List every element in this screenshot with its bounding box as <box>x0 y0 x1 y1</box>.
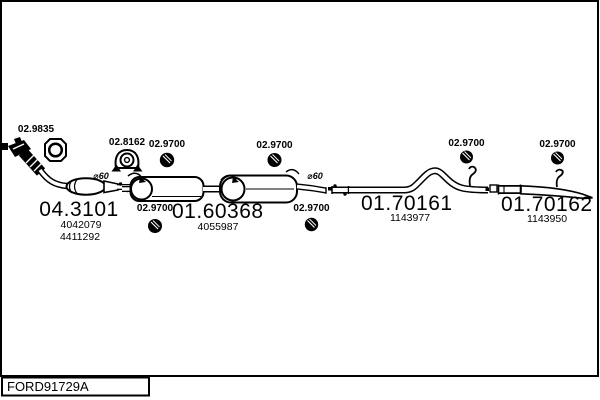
centre-silencer-rear-chamber <box>220 170 299 203</box>
exhaust-system-diagram: 02.9835 02.8162 02.9700 02.9700 02.9700 … <box>0 0 600 400</box>
rubber-ring-icon <box>268 153 282 167</box>
fitting-code-rubber-mount: 02.8162 <box>106 138 148 148</box>
oe-ref: 1143950 <box>517 214 577 225</box>
rubber-ring-icon <box>305 218 318 231</box>
part-number-centre-silencer: 01.60368 <box>172 201 262 222</box>
oe-ref: 4055987 <box>188 222 248 233</box>
part-number-tail-pipe: 01.70162 <box>501 194 591 215</box>
rubber-ring-icon <box>460 151 473 164</box>
centre-pipe-drawing <box>349 167 497 192</box>
centre-silencer-front-chamber <box>122 173 204 201</box>
fitting-code-rubber-ring: 02.9700 <box>254 141 295 151</box>
rubber-mount-icon <box>112 150 143 172</box>
fitting-code-flange-gasket: 02.9835 <box>17 125 55 135</box>
part-number-front-exhaust: 04.3101 <box>36 199 122 220</box>
oe-ref: 4411292 <box>50 232 110 243</box>
diameter-label: ⌀60 <box>90 172 112 181</box>
fitting-code-rubber-ring: 02.9700 <box>446 139 487 149</box>
hanger-hook <box>556 170 563 187</box>
part-number-centre-pipe: 01.70161 <box>361 193 451 214</box>
fitting-code-rubber-ring: 02.9700 <box>291 204 332 214</box>
drawing-code: FORD91729A <box>7 380 89 394</box>
fitting-code-rubber-ring: 02.9700 <box>147 140 187 150</box>
fitting-code-rubber-ring: 02.9700 <box>537 140 578 150</box>
rubber-ring-icon <box>148 219 162 233</box>
weld-seam <box>286 170 299 174</box>
flex-section <box>23 152 42 172</box>
pipe-clamp <box>328 184 349 195</box>
square-gasket-icon <box>45 139 66 161</box>
fitting-code-rubber-ring: 02.9700 <box>135 204 175 214</box>
rubber-ring-icon <box>160 153 174 167</box>
hanger-hook <box>469 167 476 186</box>
oe-ref: 1143977 <box>380 213 440 224</box>
front-pipe <box>40 170 67 186</box>
oe-ref: 4042079 <box>51 220 111 231</box>
tail-spout <box>297 187 326 194</box>
diameter-label: ⌀60 <box>304 172 326 181</box>
rubber-ring-icon <box>551 152 564 165</box>
